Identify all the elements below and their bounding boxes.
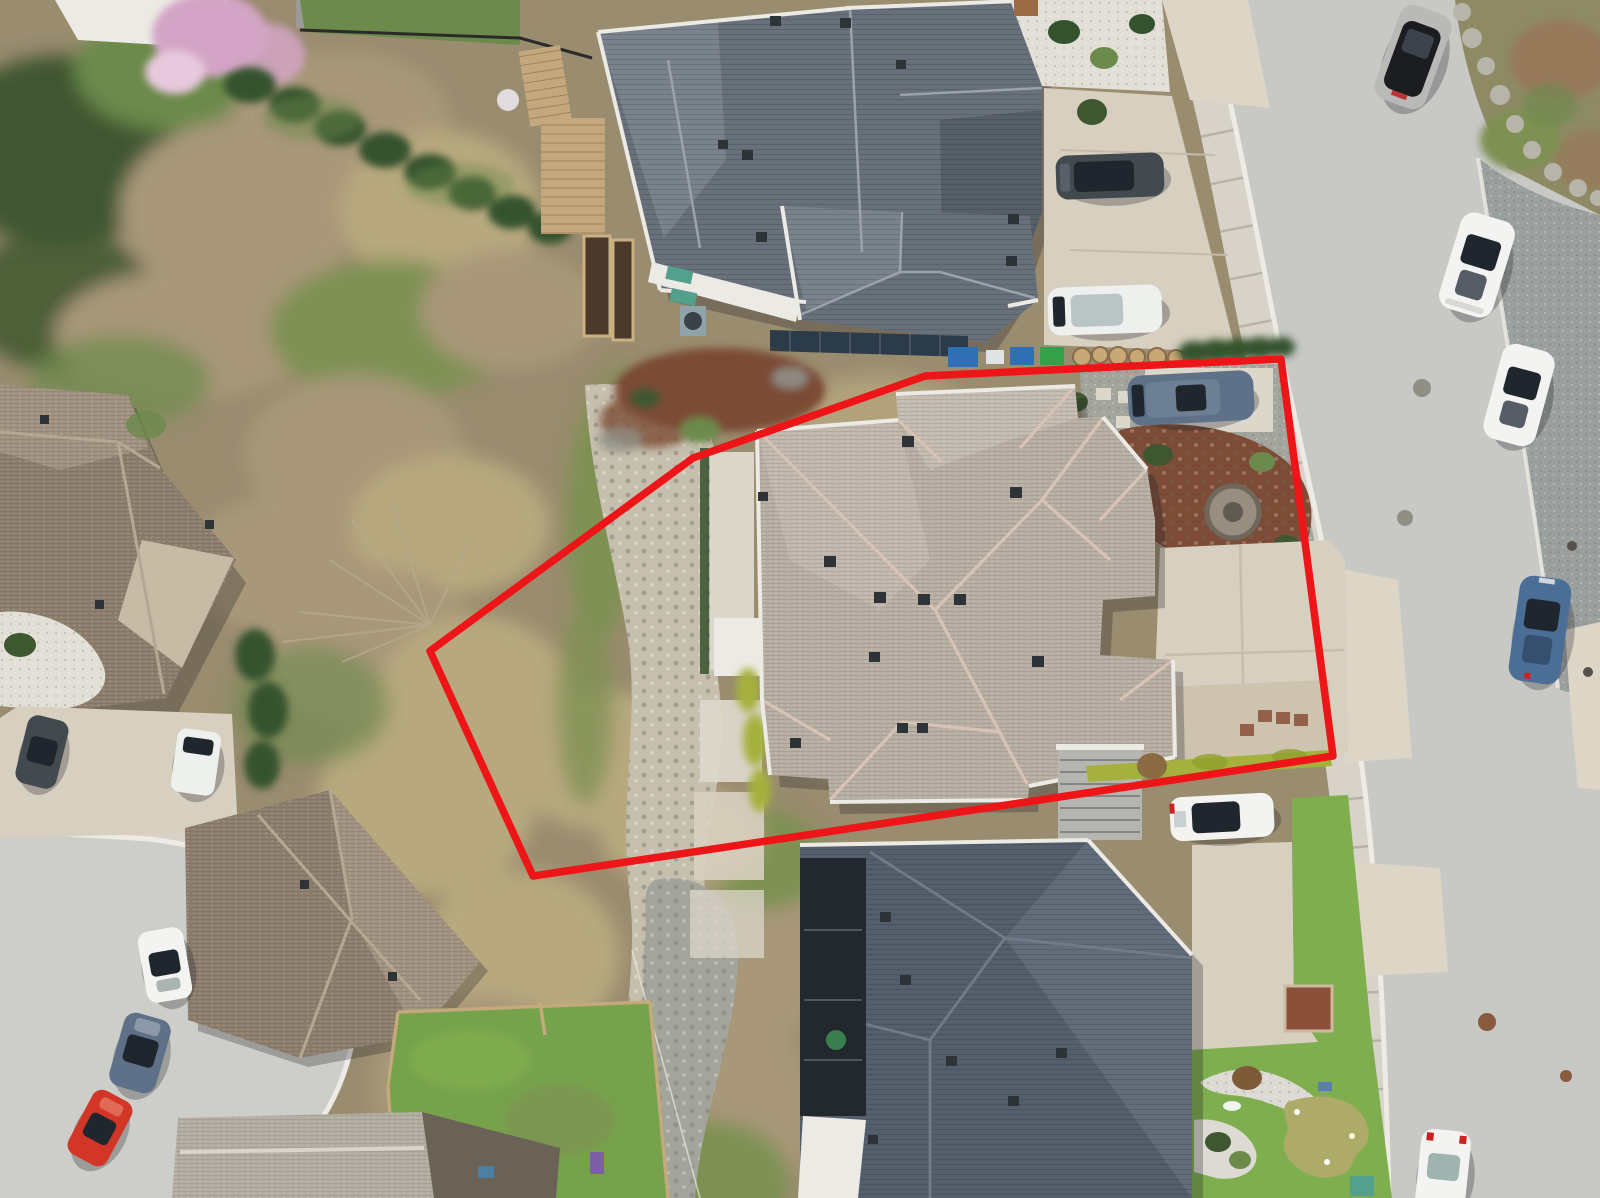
recycle-bin-blue-1 bbox=[948, 347, 978, 367]
side-hedge bbox=[700, 448, 709, 674]
house-south-deck bbox=[798, 1116, 866, 1198]
white-flower-shrub bbox=[497, 89, 519, 111]
wood-pile bbox=[1014, 0, 1038, 16]
garden-box bbox=[1285, 986, 1332, 1031]
aerial-photo: Aerial drone photograph of a residential… bbox=[0, 0, 1600, 1198]
driveway-apron-south bbox=[1352, 862, 1448, 976]
wood-deck bbox=[541, 118, 605, 234]
teal-mat bbox=[1350, 1176, 1374, 1196]
blue-tarp bbox=[478, 1166, 494, 1178]
car-white-street-3 bbox=[1412, 1128, 1479, 1198]
aerial-photo-canvas: Aerial drone photograph of a residential… bbox=[0, 0, 1600, 1198]
purple-cover bbox=[590, 1152, 604, 1174]
house-south-black-section bbox=[800, 858, 866, 1116]
recycle-bin-blue-2 bbox=[1010, 347, 1034, 365]
putting-green bbox=[1192, 1038, 1392, 1198]
brown-bush bbox=[1232, 1066, 1262, 1090]
raised-garden-beds bbox=[584, 236, 633, 340]
side-pad-white bbox=[714, 618, 760, 676]
bin-green bbox=[1040, 347, 1064, 365]
green-bucket bbox=[826, 1030, 846, 1050]
bin-white bbox=[986, 350, 1004, 364]
house-south bbox=[798, 795, 1392, 1198]
